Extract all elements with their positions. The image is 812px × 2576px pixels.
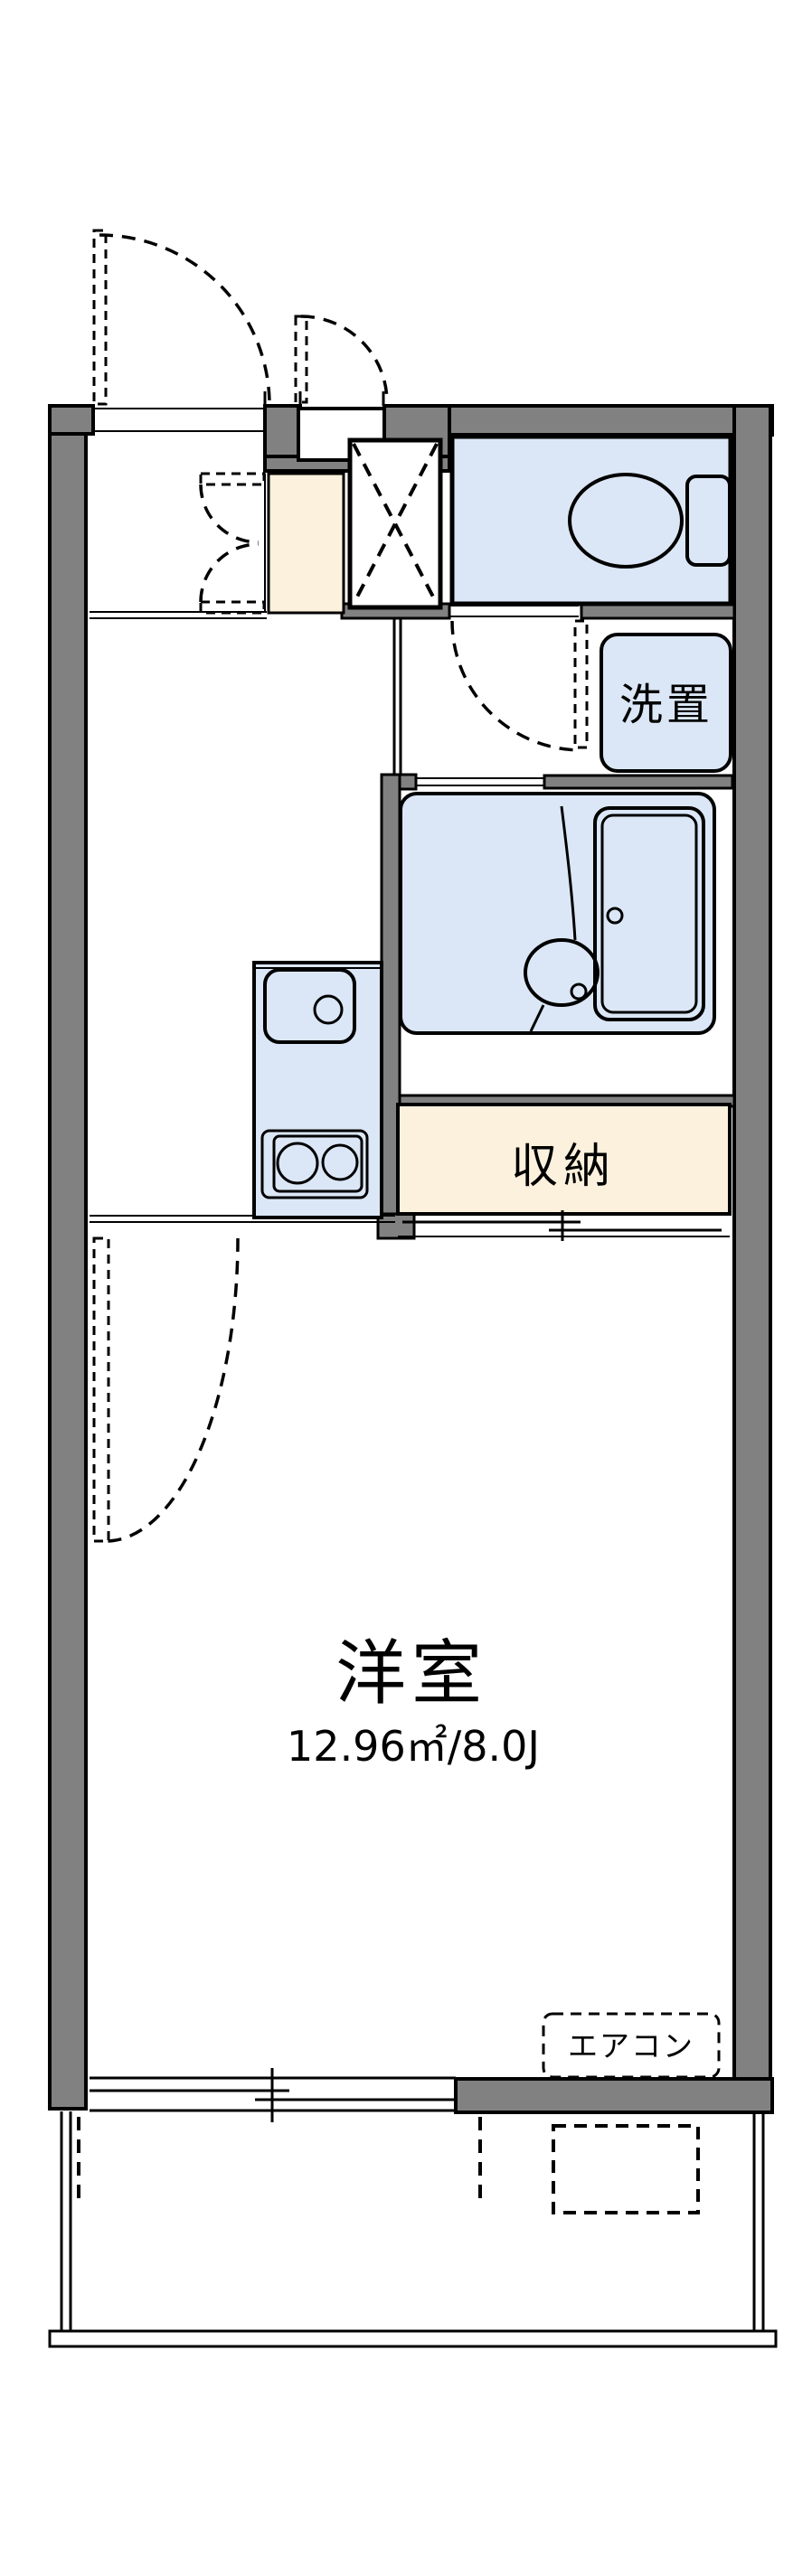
toilet-room — [449, 437, 731, 616]
floor-plan: 洗置 収納 — [0, 0, 812, 2576]
main-room: 洋室 12.96㎡/8.0J — [287, 1633, 540, 1771]
right-wall — [734, 406, 770, 2112]
washer-space-label: 洗置 — [619, 680, 713, 730]
top-wall-left — [50, 406, 93, 434]
storage-label: 収納 — [511, 1140, 616, 1194]
balcony — [50, 2111, 776, 2346]
aircon-label: エアコン — [568, 2028, 694, 2064]
main-room-label: 洋室 — [335, 1633, 487, 1715]
closet-double-doors — [201, 474, 264, 613]
bath-top-wall-right — [544, 776, 732, 788]
meter-box-door-swing — [296, 316, 387, 402]
toilet-tank — [687, 476, 730, 565]
pipe-space — [350, 440, 440, 607]
kitchen-counter — [254, 963, 382, 1217]
washer-space: 洗置 — [601, 635, 731, 771]
bottom-wall-right — [456, 2079, 772, 2112]
outdoor-unit-area — [553, 2126, 698, 2213]
entrance-door-swing — [94, 230, 269, 405]
floor-plan-page: 洗置 収納 — [0, 0, 812, 2576]
balcony-rail — [50, 2331, 776, 2346]
left-wall — [50, 406, 86, 2109]
storage-closet: 収納 — [398, 1105, 730, 1214]
aircon-box: エアコン — [543, 2014, 719, 2077]
bathroom — [401, 794, 714, 1033]
main-room-door-swing — [94, 1238, 238, 1541]
toilet-bowl — [570, 475, 682, 567]
washroom-partition — [394, 618, 401, 776]
toilet-door-swing — [452, 621, 587, 750]
entry-closet — [265, 474, 344, 613]
balcony-window — [90, 2068, 456, 2122]
top-wall-right — [449, 406, 772, 435]
main-room-area-label: 12.96㎡/8.0J — [287, 1722, 540, 1771]
